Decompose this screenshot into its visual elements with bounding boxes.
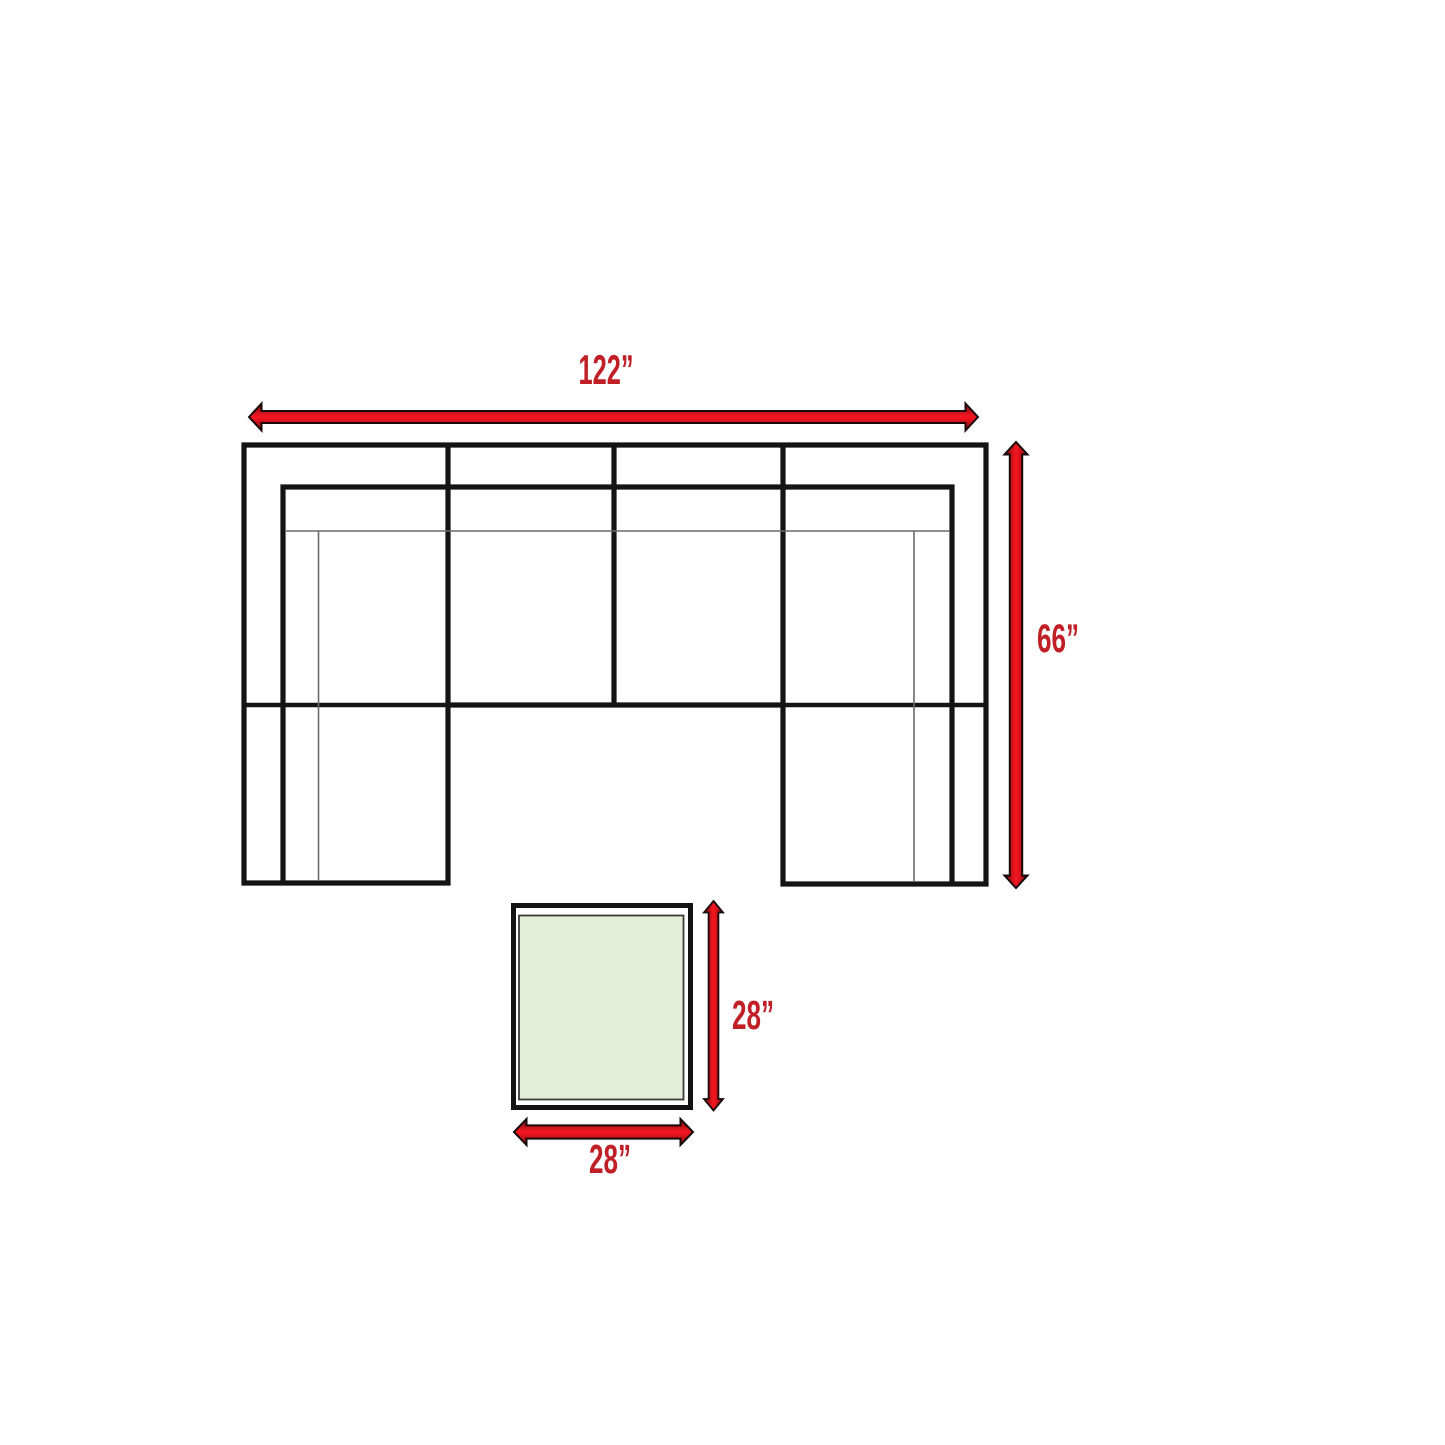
svg-text:28”: 28”: [589, 1136, 631, 1182]
svg-text:28”: 28”: [732, 992, 774, 1038]
svg-text:122”: 122”: [579, 346, 634, 393]
svg-text:66”: 66”: [1037, 617, 1079, 661]
